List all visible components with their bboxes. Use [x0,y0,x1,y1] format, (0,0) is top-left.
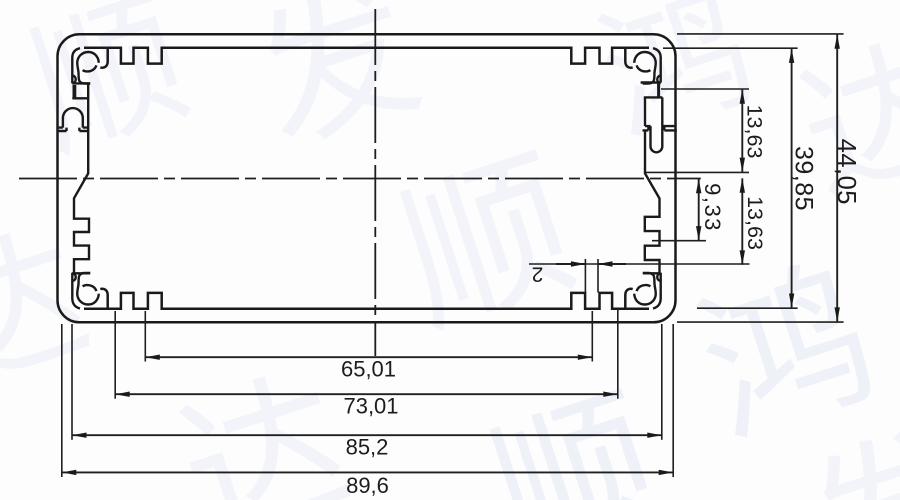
svg-text:89,6: 89,6 [346,473,389,498]
svg-text:2: 2 [532,263,544,286]
svg-text:85,2: 85,2 [346,435,389,460]
svg-text:9,33: 9,33 [700,183,725,232]
svg-text:44,05: 44,05 [832,139,860,205]
svg-text:73,01: 73,01 [343,394,398,419]
svg-text:13,63: 13,63 [743,196,767,250]
svg-text:13,63: 13,63 [743,105,767,159]
svg-text:39,85: 39,85 [790,146,818,211]
svg-text:65,01: 65,01 [341,357,396,382]
